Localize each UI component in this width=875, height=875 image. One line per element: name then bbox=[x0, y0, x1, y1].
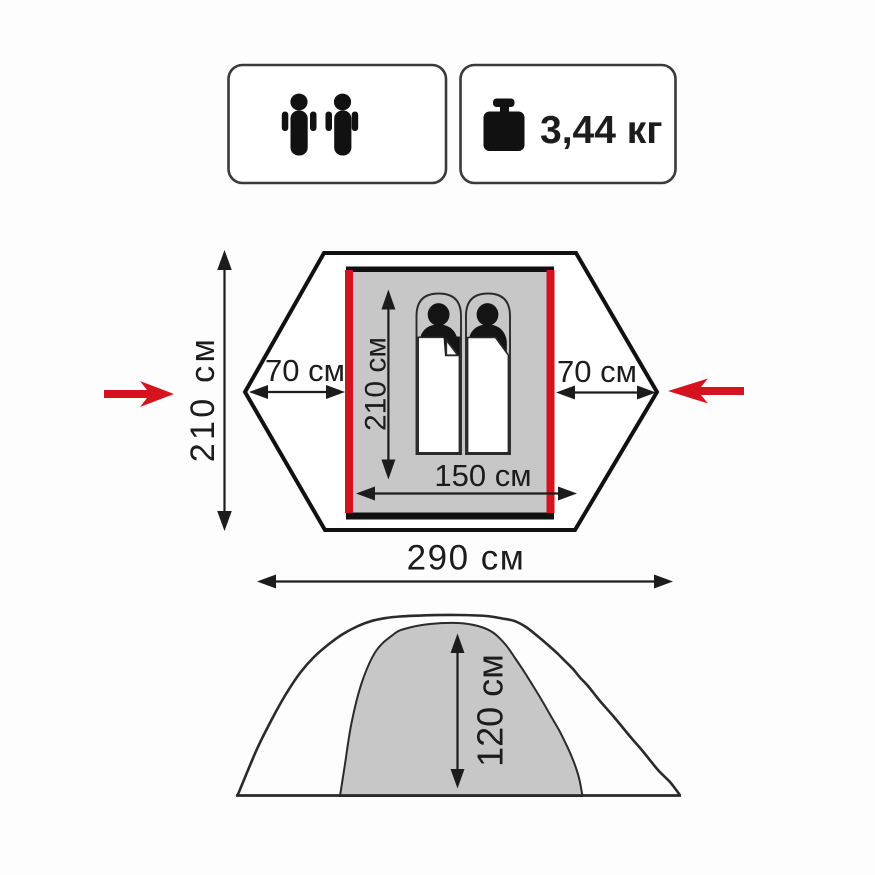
svg-text:120 см: 120 см bbox=[470, 654, 511, 767]
svg-text:3,44 кг: 3,44 кг bbox=[540, 109, 663, 152]
svg-text:210 см: 210 см bbox=[184, 336, 222, 462]
svg-text:70 см: 70 см bbox=[557, 354, 637, 389]
svg-text:70 см: 70 см bbox=[265, 353, 345, 388]
svg-text:290 см: 290 см bbox=[407, 539, 526, 578]
svg-text:150 см: 150 см bbox=[434, 458, 531, 493]
svg-text:210 см: 210 см bbox=[360, 337, 393, 431]
